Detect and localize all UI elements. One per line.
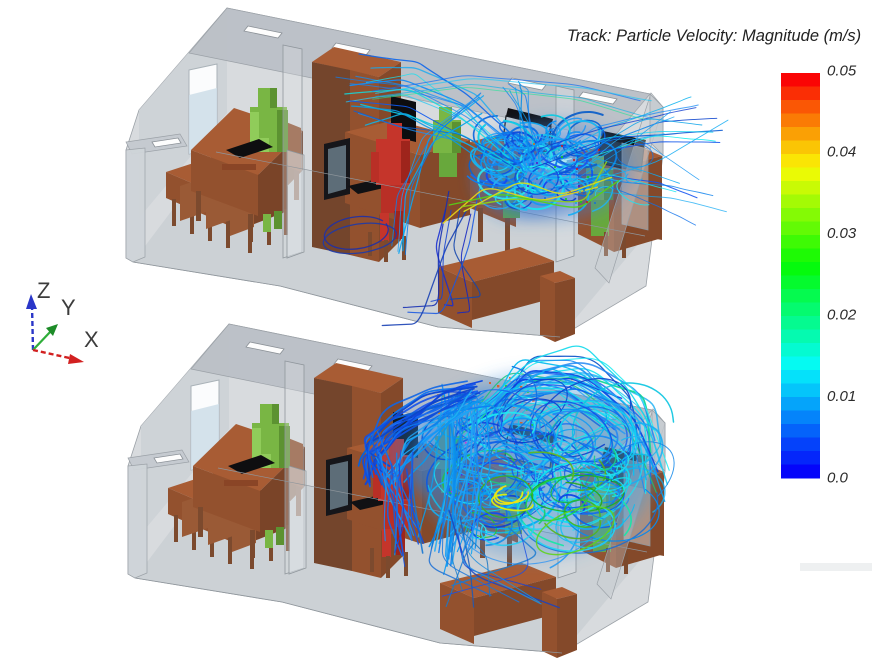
svg-text:Y: Y: [61, 295, 76, 320]
svg-text:Z: Z: [37, 278, 50, 303]
svg-text:0.01: 0.01: [827, 388, 856, 405]
svg-text:0.03: 0.03: [827, 225, 857, 242]
svg-text:0.02: 0.02: [827, 307, 857, 324]
svg-text:Track: Particle Velocity: Magn: Track: Particle Velocity: Magnitude (m/s…: [567, 27, 861, 45]
svg-text:0.04: 0.04: [827, 144, 856, 161]
svg-text:X: X: [84, 327, 99, 352]
svg-text:0.0: 0.0: [827, 470, 849, 487]
svg-text:0.05: 0.05: [827, 63, 857, 80]
